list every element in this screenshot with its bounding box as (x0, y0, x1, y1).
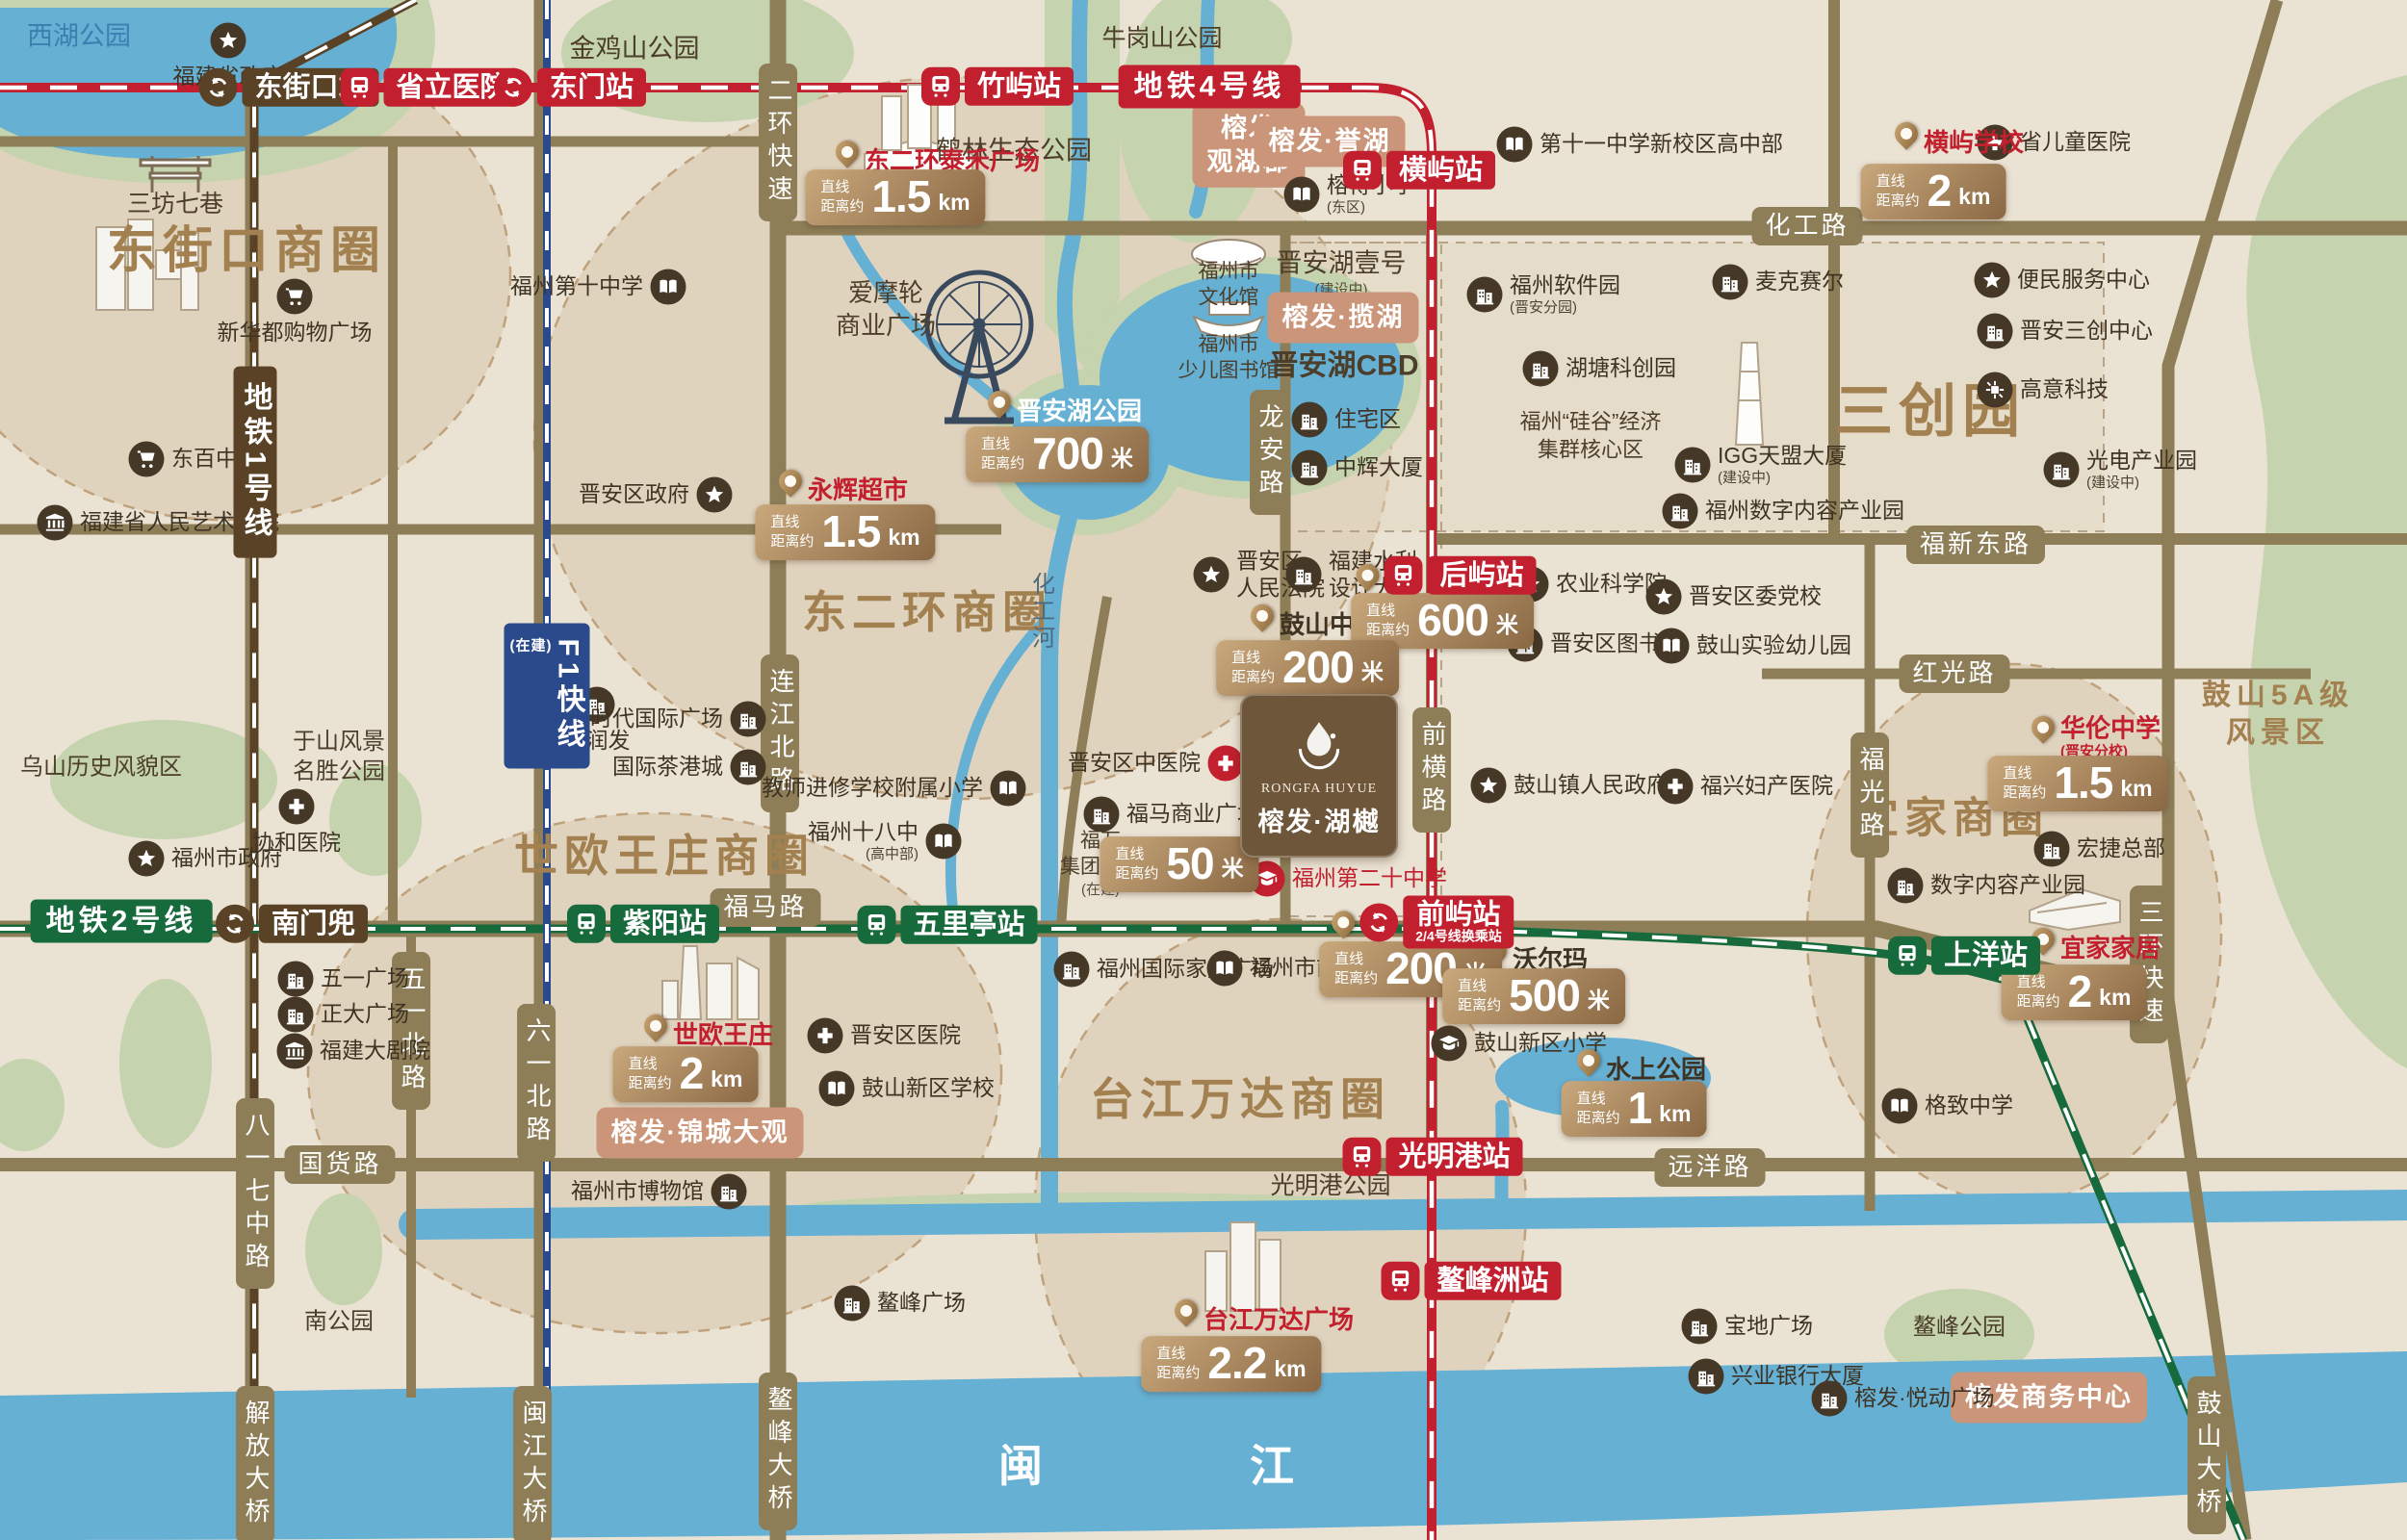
park-xihu: 西湖公园 (27, 19, 131, 53)
label-text: 永辉超市 (808, 476, 908, 505)
fuma-plaza-icon (1084, 797, 1120, 833)
circle-wanda: 台江万达商圈 (1090, 1071, 1390, 1129)
cross-icon (286, 796, 308, 818)
station-name: 鳌峰洲站 (1436, 1267, 1548, 1296)
station-guangminggang: 光明港站 (1342, 1138, 1522, 1176)
label-text: 福州数字内容产业园 (1705, 498, 1904, 525)
label-text: 西湖公园 (27, 19, 131, 53)
station-name-box: 前屿站2/4号线换乘站 (1403, 895, 1514, 948)
train-icon (864, 912, 889, 937)
label-text: 麦克赛尔 (1755, 269, 1844, 295)
distance-unit: km (711, 1066, 742, 1095)
star-icon (1981, 269, 2004, 292)
distance-unit: km (1958, 184, 1990, 213)
building-icon (1720, 271, 1742, 294)
label-text: 高意科技 (2020, 376, 2109, 403)
badge-prefix: 直线距离约 (1156, 1346, 1200, 1383)
building-icon (1530, 358, 1552, 380)
river-huagong: 化工河 (1025, 572, 1055, 653)
distance-value: 2.2 (1207, 1343, 1266, 1385)
cart-icon (284, 286, 306, 308)
book-icon (1214, 958, 1236, 980)
station-shangyang: 上洋站 (1888, 937, 2040, 975)
fuxing-maternity-hospital-icon (1658, 769, 1694, 805)
cross-icon (1215, 753, 1237, 775)
no20-middle-school: 福州第二十中学 (1292, 865, 1447, 892)
badge-prefix-line: 距离约 (770, 532, 814, 552)
theater-icon (284, 1040, 306, 1063)
arrows-icon (501, 75, 526, 100)
badge-prefix-line: 直线 (820, 179, 864, 198)
distance-value: 700 (1032, 433, 1103, 475)
train-icon (1888, 937, 1927, 975)
gushan-new-area-school-icon (819, 1071, 855, 1107)
xinhuadu-mall: 新华都购物广场 (218, 320, 373, 346)
jinan-party-school: 晋安区委党校 (1689, 583, 1822, 610)
badge-prefix-line: 距离约 (1334, 969, 1378, 988)
distance-unit: km (1659, 1101, 1691, 1130)
badge-prefix: 直线距离约 (1334, 951, 1378, 988)
station-name: 光明港站 (1398, 1142, 1510, 1171)
gushan-new-area-school: 鼓山新区学校 (862, 1075, 995, 1102)
badge-prefix-line: 距离约 (981, 454, 1024, 474)
train-icon (1384, 556, 1422, 595)
residential-area: 住宅区 (1334, 406, 1401, 433)
no10-middle-school: 福州第十中学 (510, 273, 643, 300)
fujian-grand-theater-icon (277, 1034, 313, 1069)
label-text: 宏捷总部 (2077, 835, 2165, 862)
badge-prefix: 直线距离约 (1231, 650, 1275, 687)
pin-wanda-plaza: 台江万达广场 (1203, 1306, 1354, 1335)
silicon-valley-cluster: 福州“硅谷”经济集群核心区 (1520, 408, 1662, 463)
park-niugangshan: 牛岗山公园 (1101, 23, 1222, 55)
interchange-icon (198, 68, 237, 107)
station-name: 南门兜 (272, 910, 355, 938)
jinan-court-icon (1194, 557, 1229, 593)
station-hengyu: 横屿站 (1343, 151, 1495, 190)
project-card: RONGFA HUYUE 榕发·湖樾 (1240, 694, 1398, 858)
jinan-district-gov: 晋安区政府 (579, 481, 689, 508)
photoelectric-park-icon (2044, 452, 2080, 488)
box-line: 榕发·锦城大观 (611, 1116, 789, 1149)
distance-unit: 米 (1588, 982, 1610, 1017)
hutang-park: 湖塘科创园 (1566, 355, 1676, 382)
convenience-center-icon (1975, 263, 2010, 298)
label-text: 晋安区医院 (850, 1022, 961, 1049)
station-name-box: 横屿站 (1386, 151, 1495, 190)
label-text: 教师进修学校附属小学 (762, 775, 983, 802)
badge-prefix: 直线距离约 (2003, 765, 2046, 803)
building-icon (841, 1293, 864, 1315)
gaoyi-tech-icon (1978, 372, 2013, 408)
road-longan: 龙安路 (1250, 390, 1288, 515)
wuyi-square-icon (278, 962, 314, 997)
label-text: 横屿学校 (1924, 129, 2024, 158)
distance-value: 500 (1509, 975, 1580, 1017)
label-text: IGG天盟大厦 (1718, 443, 1847, 470)
station-name: 上洋站 (1944, 941, 2028, 970)
label-text: 台江万达商圈 (1090, 1071, 1390, 1129)
fuzhou-location-map: 地铁1号线地铁2号线地铁4号线F1快线(在建)东街口站省立医院东门站竹屿站横屿站… (0, 0, 2407, 1540)
label-text: 福兴妇产医院 (1700, 773, 1833, 800)
interchange-icon (216, 905, 254, 943)
aofeng-plaza-icon (835, 1286, 870, 1322)
6-line: 于山风景 (293, 727, 385, 757)
photoelectric-park: 光电产业园(建设中) (2086, 448, 2197, 492)
badge-prefix: 直线距离约 (1577, 1091, 1620, 1128)
gradcap-icon (1256, 868, 1279, 890)
badge-prefix-line: 距离约 (1876, 192, 1920, 211)
badge-prefix: 直线距离约 (770, 514, 814, 552)
cross-icon (815, 1025, 837, 1047)
badge-prefix-line: 距离约 (2017, 992, 2060, 1012)
jinan-district-hospital-icon (808, 1018, 843, 1054)
train-icon (347, 75, 372, 100)
label-text: 南公园 (304, 1306, 374, 1336)
badge-water-park: 直线距离约1km (1562, 1081, 1707, 1137)
badge-fuma-plaza: 直线距离约50米 (1100, 836, 1258, 892)
jinan-district-gov-icon (697, 477, 733, 513)
metro-line-name: 地铁4号线 (1134, 71, 1285, 103)
station-name-box: 南门兜 (259, 905, 368, 943)
star-icon (136, 848, 158, 870)
distance-value: 1.5 (871, 176, 930, 218)
xiehe-hospital-icon (279, 789, 315, 825)
building-icon (2041, 838, 2063, 860)
book-icon (1291, 184, 1313, 206)
label-text: 福建大剧院 (320, 1038, 430, 1065)
intl-tea-port-icon (731, 750, 766, 785)
star-icon (704, 484, 726, 506)
pin-taihe-plaza-pin (831, 136, 864, 168)
cib-tower: 兴业银行大厦 (1731, 1363, 1864, 1390)
badge-prefix: 直线距离约 (1876, 173, 1920, 211)
building-icon (738, 757, 760, 779)
road-bayiqi-middle: 八一七中路 (236, 1098, 274, 1289)
wushan-area: 乌山历史风貌区 (20, 752, 182, 782)
convenience-center: 便民服务中心 (2017, 267, 2150, 294)
map-pin (1327, 906, 1359, 938)
station-dongmen: 东门站 (494, 68, 646, 107)
label-text: 兴业银行大厦 (1731, 1363, 1864, 1390)
label-text: 化工河 (1025, 572, 1055, 653)
book-icon (1661, 635, 1683, 657)
6-line: 风景区 (2202, 714, 2354, 752)
6-line: 名胜公园 (293, 757, 385, 786)
road-jiefang-bridge: 解放大桥 (236, 1386, 274, 1540)
building-icon (1984, 321, 2006, 343)
arrows-icon (1366, 910, 1391, 935)
fuzhou-museum: 福州市博物馆 (571, 1178, 704, 1205)
badge-shiou: 直线距离约2km (613, 1046, 759, 1102)
badge-gushan-primary: 直线距离约200米 (1216, 640, 1399, 696)
gezhi-school-icon (1882, 1089, 1918, 1124)
train-icon (1381, 1262, 1419, 1300)
no11-school-new-campus: 第十一中学新校区高中部 (1540, 131, 1783, 158)
gezhi-school: 格致中学 (1925, 1092, 2013, 1119)
jinan-district-hospital: 晋安区医院 (850, 1022, 961, 1049)
badge-prefix-line: 直线 (1876, 173, 1920, 192)
aofeng-plaza: 鳌峰广场 (877, 1290, 966, 1317)
label-text: 晋安区中医院 (1068, 750, 1201, 777)
building-icon (1091, 804, 1113, 826)
label-text: 闽 (998, 1438, 1043, 1496)
badge-prefix-line: 直线 (1334, 951, 1378, 970)
park-jinjishan: 金鸡山公园 (570, 32, 700, 65)
cart-icon (136, 449, 158, 471)
train-icon (1350, 158, 1375, 183)
badge-prefix-line: 直线 (1366, 603, 1410, 622)
distance-unit: km (2120, 776, 2152, 805)
badge-prefix-line: 距离约 (1156, 1364, 1200, 1383)
train-icon (1349, 1144, 1374, 1169)
label-text: 榕发·悦动广场 (1854, 1385, 1995, 1412)
fujian-province-gov-icon (211, 23, 246, 59)
road-guohuo: 国货路 (284, 1145, 395, 1184)
fuzhou-children-library: 福州市少儿图书馆 (1178, 332, 1280, 385)
digital-content-park-icon (1888, 868, 1924, 904)
metro-line-name: 地铁2号线 (46, 906, 197, 937)
pin-yonghui-market: 永辉超市 (808, 476, 908, 505)
6-line: 鼓山5A级 (2202, 677, 2354, 714)
station-qianyu: 前屿站2/4号线换乘站 (1332, 895, 1514, 948)
label-text: 第十一中学新校区高中部 (1540, 131, 1783, 158)
train-icon (567, 905, 606, 943)
label-text: 省儿童医院 (2020, 129, 2131, 156)
dongbai-center-icon (129, 442, 165, 477)
badge-prefix: 直线距离约 (1366, 603, 1410, 640)
station-zhuyu: 竹屿站 (921, 67, 1074, 106)
label-text: 晋安湖壹号 (1277, 247, 1407, 281)
badge-wanda: 直线距离约2.2km (1141, 1336, 1321, 1392)
label-text: 晋安三创中心 (2020, 318, 2153, 345)
distance-value: 1.5 (2054, 762, 2112, 805)
igg-tianmeng-tower: IGG天盟大厦(建设中) (1718, 443, 1847, 487)
metro-line4-label: 地铁4号线 (1119, 65, 1301, 109)
label-text: 华伦中学 (2060, 714, 2161, 743)
train-icon (1390, 563, 1415, 588)
badge-prefix-line: 距离约 (1231, 668, 1275, 687)
distance-value: 2 (680, 1053, 704, 1095)
distance-value: 600 (1417, 600, 1488, 642)
star-icon (1201, 564, 1223, 586)
badge-prefix: 直线距离约 (1115, 846, 1158, 884)
intl-home-plaza: 福州国际家居广场 (1097, 956, 1274, 983)
label-text: 福州国际家居广场 (1097, 956, 1274, 983)
people-art-theater-icon (38, 505, 73, 541)
label-text: 新华都购物广场 (218, 320, 373, 346)
badge-prefix: 直线距离约 (1458, 978, 1501, 1015)
xinhuadu-mall-icon (277, 279, 313, 315)
building-icon (285, 1004, 307, 1026)
badge-prefix-line: 距离约 (1577, 1109, 1620, 1128)
circle-donger: 东二环商圈 (802, 584, 1052, 642)
train-icon (1387, 1269, 1412, 1294)
badge-prefix: 直线距离约 (2017, 974, 2060, 1012)
children-hospital: 省儿童医院 (2020, 129, 2131, 156)
building-icon (1695, 1366, 1718, 1388)
station-name: 省立医院 (396, 73, 507, 102)
building-icon (1299, 457, 1321, 479)
road-yuanyang: 远洋路 (1654, 1148, 1765, 1187)
jinan-sanchuang-center-icon (1978, 314, 2013, 349)
circle-shiou: 世欧王庄商圈 (514, 828, 815, 885)
project-name-en: RONGFA HUYUE (1261, 782, 1377, 797)
train-icon (928, 74, 953, 99)
badge-prefix-line: 直线 (981, 436, 1024, 455)
box-line: 榕发·揽湖 (1282, 300, 1405, 334)
no18-middle-school-icon (926, 824, 962, 860)
road-minjiang-bridge: 闽江大桥 (513, 1386, 552, 1540)
rongfa-yuedong-plaza-icon (1812, 1381, 1848, 1417)
metro-line-status: (在建) (510, 638, 553, 654)
times-intl-plaza: 时代国际广场 (590, 706, 723, 732)
zhengda-square: 正大广场 (321, 1001, 409, 1028)
label-text: 宝地广场 (1724, 1313, 1813, 1340)
minjiang-char-1: 闽 (998, 1438, 1043, 1496)
station-name: 前屿站 (1415, 900, 1501, 929)
building-icon (718, 1181, 740, 1203)
station-name: 后屿站 (1439, 561, 1523, 590)
label-text: 福州第二十中学 (1292, 865, 1447, 892)
road-qianheng: 前横路 (1412, 707, 1451, 833)
label-text: 三坊七巷 (127, 189, 223, 220)
train-icon (1895, 943, 1920, 968)
label-text: 正大广场 (321, 1001, 409, 1028)
train-icon (1342, 1138, 1381, 1176)
arrows-icon (222, 911, 247, 937)
label-text: 国际茶港城 (612, 754, 723, 781)
label-text: 格致中学 (1925, 1092, 2013, 1119)
station-name-box: 后屿站 (1427, 556, 1536, 595)
label-text: 时代国际广场 (590, 706, 723, 732)
gushan-new-area-primary-icon (1432, 1026, 1467, 1062)
train-icon (574, 911, 599, 937)
fuzhou-software-park-icon (1467, 277, 1503, 313)
train-icon (340, 68, 378, 107)
label-text: 福州软件园 (1510, 272, 1620, 299)
label-text: 中辉大厦 (1334, 454, 1423, 481)
hutang-park-icon (1523, 351, 1559, 387)
metro-line-name: 地铁1号线 (240, 382, 272, 543)
no11-school-new-campus-icon (1497, 127, 1533, 163)
project-name-zh: 榕发·湖樾 (1258, 801, 1381, 838)
station-transfer-note: 2/4号线换乘站 (1415, 930, 1501, 944)
station-wuliting: 五里亭站 (857, 906, 1037, 944)
badge-taihe: 直线距离约1.5km (805, 169, 985, 225)
label-sub: (晋安分园) (1510, 299, 1620, 317)
station-name: 横屿站 (1399, 156, 1483, 185)
label-text: 东街口商圈 (107, 219, 386, 285)
label-text: 金鸡山公园 (570, 32, 700, 65)
pin-yonghui-market-pin (774, 465, 807, 498)
badge-hualun: 直线距离约1.5km (1987, 756, 2167, 811)
baodi-plaza: 宝地广场 (1724, 1313, 1813, 1340)
star-icon (1653, 586, 1675, 608)
arrows-icon (205, 75, 230, 100)
building-icon (1293, 564, 1315, 586)
project-logo-drop (1287, 714, 1351, 778)
gaoyi-tech: 高意科技 (2020, 376, 2109, 403)
book-icon (1504, 134, 1526, 156)
pin-hengyu-school-pin (1890, 117, 1923, 150)
teachers-affiliated-primary-icon (991, 771, 1026, 807)
badge-prefix: 直线距离约 (820, 179, 864, 217)
zhonghui-tower: 中辉大厦 (1334, 454, 1423, 481)
road-huagong: 化工路 (1751, 207, 1862, 245)
label-text: 晋安湖CBD (1270, 347, 1419, 385)
jinan-tcm-hospital-icon (1208, 746, 1244, 782)
pin-hualun-school-pin (2027, 711, 2059, 744)
qianyu-primary-icon (1207, 951, 1243, 987)
station-aofengzhou: 鳌峰洲站 (1381, 1262, 1561, 1300)
gushan-kindergarten-icon (1654, 629, 1690, 664)
label-text: 台江万达广场 (1203, 1306, 1354, 1335)
building-icon (738, 708, 760, 731)
jinan-tcm-hospital: 晋安区中医院 (1068, 750, 1201, 777)
gushan-kindergarten: 鼓山实验幼儿园 (1696, 632, 1851, 659)
building-icon (285, 968, 307, 990)
label-sub: (建设中) (1718, 470, 1847, 487)
jinanhu-cbd: 晋安湖CBD (1270, 347, 1419, 385)
badge-jinanhu: 直线距离约700米 (966, 426, 1149, 482)
station-name-box: 光明港站 (1385, 1138, 1522, 1176)
maxell-icon (1713, 265, 1748, 300)
badge-prefix-line: 直线 (770, 514, 814, 533)
label-sub: (东区) (1327, 199, 1415, 217)
fujian-grand-theater: 福建大剧院 (320, 1038, 430, 1065)
gradcap-icon (1438, 1033, 1461, 1055)
metro-line-name: F1快线 (553, 638, 584, 753)
zone-gushan-5a: 鼓山5A级风景区 (2202, 677, 2354, 752)
rongfa-yuedong-plaza: 榕发·悦动广场 (1854, 1385, 1995, 1412)
label-text: 鳌峰广场 (877, 1290, 966, 1317)
badge-hengyu-school: 直线距离约2km (1861, 164, 2006, 219)
pin-hualun-school: 华伦中学(晋安分校) (2060, 714, 2161, 759)
maxell: 麦克赛尔 (1755, 269, 1844, 295)
distance-unit: 米 (1222, 850, 1244, 885)
train-icon (857, 906, 895, 944)
book-icon (826, 1078, 848, 1100)
star-icon (1478, 775, 1500, 797)
label-text: 福州第十中学 (510, 273, 643, 300)
building-icon (1474, 284, 1496, 306)
14-line: 福州市 (1199, 259, 1259, 285)
distance-unit: 米 (1496, 606, 1518, 642)
13-line: 商业广场 (836, 310, 936, 343)
label-text: 江 (1250, 1438, 1294, 1496)
label-text: 鼓山新区学校 (862, 1075, 995, 1102)
no18-middle-school: 福州十八中(高中部) (808, 819, 919, 863)
park-nangongyuan: 南公园 (304, 1306, 374, 1336)
badge-prefix-line: 直线 (1577, 1091, 1620, 1110)
fuxing-maternity-hospital: 福兴妇产医院 (1700, 773, 1833, 800)
box-rongfa-lanhu: 榕发·揽湖 (1268, 292, 1419, 343)
fuzhou-city-gov: 福州市政府 (171, 845, 282, 872)
book-icon (658, 276, 680, 298)
13-line: 爱摩轮 (836, 277, 936, 310)
badge-prefix-line: 直线 (1231, 650, 1275, 669)
train-icon (921, 67, 960, 106)
15-line: 少儿图书馆 (1178, 358, 1280, 384)
fuzhou-museum-icon (712, 1174, 747, 1210)
map-pin (1352, 559, 1385, 592)
road-fuxin-east: 福新东路 (1906, 526, 2045, 564)
label-sub: (高中部) (808, 846, 919, 863)
rongbo-primary-icon (1284, 177, 1320, 213)
fuzhou-city-gov-icon (129, 841, 165, 877)
baodi-plaza-icon (1682, 1309, 1718, 1345)
